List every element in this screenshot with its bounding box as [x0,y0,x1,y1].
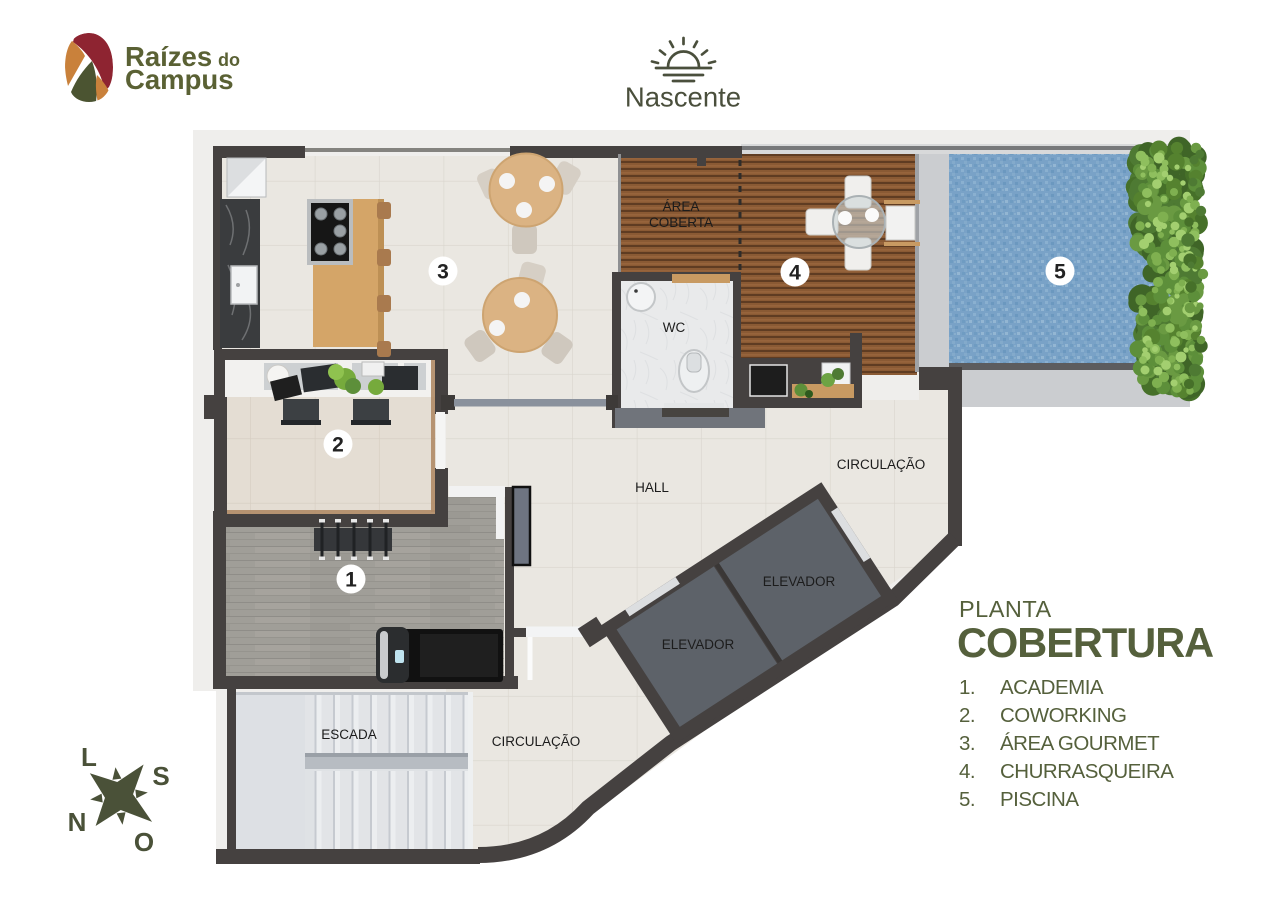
svg-text:ELEVADOR: ELEVADOR [763,574,836,589]
svg-text:CIRCULAÇÃO: CIRCULAÇÃO [837,457,926,472]
svg-text:3: 3 [437,261,449,284]
svg-text:2.: 2. [959,704,975,727]
svg-text:ELEVADOR: ELEVADOR [662,637,735,652]
svg-text:1: 1 [345,569,357,592]
svg-text:CIRCULAÇÃO: CIRCULAÇÃO [492,734,581,749]
svg-text:COBERTURA: COBERTURA [957,619,1213,666]
svg-text:COWORKING: COWORKING [1000,704,1126,727]
svg-text:PISCINA: PISCINA [1000,788,1079,811]
svg-text:WC: WC [663,320,686,335]
svg-text:Nascente: Nascente [625,82,741,113]
svg-text:O: O [134,827,154,857]
svg-text:HALL: HALL [635,480,669,495]
svg-text:S: S [152,761,169,791]
svg-text:5.: 5. [959,788,975,811]
svg-text:4.: 4. [959,760,975,783]
svg-text:N: N [68,807,87,837]
svg-text:ÁREA: ÁREA [663,199,700,214]
svg-text:ACADEMIA: ACADEMIA [1000,676,1104,699]
svg-text:ESCADA: ESCADA [321,727,377,742]
svg-text:ÁREA GOURMET: ÁREA GOURMET [1000,732,1160,755]
svg-text:L: L [81,742,97,772]
svg-text:CHURRASQUEIRA: CHURRASQUEIRA [1000,760,1174,783]
svg-text:2: 2 [332,434,344,457]
svg-text:4: 4 [789,262,801,285]
svg-text:5: 5 [1054,261,1066,284]
svg-text:COBERTA: COBERTA [649,215,713,230]
svg-text:1.: 1. [959,676,975,699]
svg-text:3.: 3. [959,732,975,755]
svg-text:Campus: Campus [125,64,234,95]
